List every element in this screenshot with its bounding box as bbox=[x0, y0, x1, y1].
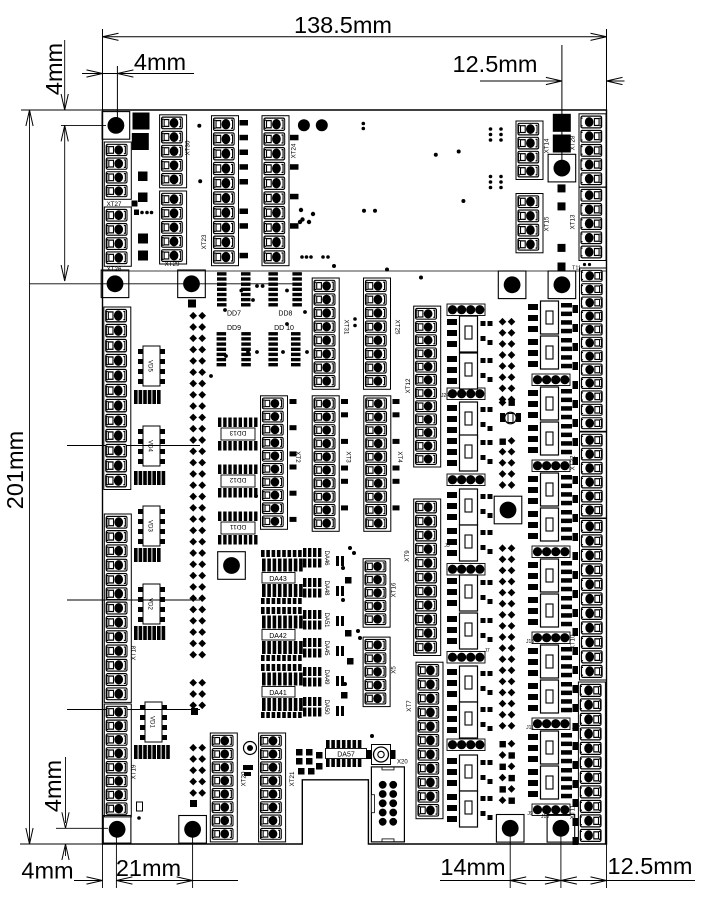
svg-text:XT14: XT14 bbox=[544, 138, 551, 153]
svg-text:DA48: DA48 bbox=[323, 580, 329, 596]
svg-text:XT12: XT12 bbox=[405, 378, 412, 393]
svg-text:VD5: VD5 bbox=[147, 360, 153, 372]
svg-text:J24: J24 bbox=[441, 393, 449, 399]
svg-text:4mm: 4mm bbox=[40, 760, 66, 812]
svg-text:DA45: DA45 bbox=[323, 640, 329, 656]
svg-text:VD1: VD1 bbox=[149, 716, 155, 728]
svg-text:DA50: DA50 bbox=[323, 699, 329, 715]
svg-text:12.5mm: 12.5mm bbox=[608, 853, 693, 879]
svg-text:XT21: XT21 bbox=[289, 771, 296, 786]
svg-text:XT15: XT15 bbox=[544, 216, 551, 231]
svg-text:XT19: XT19 bbox=[131, 764, 138, 779]
svg-text:DD8: DD8 bbox=[278, 311, 292, 318]
svg-text:XT13: XT13 bbox=[570, 214, 577, 229]
svg-text:DA51: DA51 bbox=[323, 612, 329, 628]
svg-text:201mm: 201mm bbox=[2, 431, 28, 509]
svg-text:J9: J9 bbox=[527, 811, 533, 817]
svg-text:J7: J7 bbox=[484, 648, 490, 654]
svg-text:XT3: XT3 bbox=[345, 451, 352, 463]
svg-text:DA43: DA43 bbox=[269, 576, 287, 583]
svg-text:XT29: XT29 bbox=[165, 261, 180, 268]
svg-text:DD9: DD9 bbox=[227, 325, 241, 332]
svg-text:DD12: DD12 bbox=[229, 476, 246, 483]
svg-text:DD7: DD7 bbox=[227, 311, 241, 318]
svg-text:XT23: XT23 bbox=[201, 234, 208, 249]
svg-text:XT25: XT25 bbox=[394, 320, 401, 335]
svg-text:21mm: 21mm bbox=[116, 855, 181, 881]
svg-text:XT18: XT18 bbox=[131, 645, 138, 660]
svg-text:138.5mm: 138.5mm bbox=[294, 12, 392, 38]
svg-text:VD2: VD2 bbox=[147, 598, 153, 610]
svg-text:X20: X20 bbox=[397, 760, 408, 766]
svg-text:DD13: DD13 bbox=[229, 429, 246, 436]
svg-text:4mm: 4mm bbox=[21, 858, 73, 884]
svg-text:XT26: XT26 bbox=[107, 266, 122, 273]
svg-text:DD 10: DD 10 bbox=[274, 325, 294, 332]
svg-text:XT28: XT28 bbox=[570, 135, 577, 150]
svg-text:J5: J5 bbox=[444, 543, 450, 549]
svg-text:DA41: DA41 bbox=[269, 690, 287, 697]
svg-text:J13: J13 bbox=[526, 639, 534, 645]
svg-text:J10: J10 bbox=[541, 814, 549, 820]
svg-text:DA46: DA46 bbox=[323, 550, 329, 566]
svg-text:DA57: DA57 bbox=[337, 752, 355, 759]
svg-text:DA49: DA49 bbox=[323, 669, 329, 685]
svg-text:XT7: XT7 bbox=[406, 700, 413, 712]
svg-text:XT24: XT24 bbox=[291, 143, 298, 158]
svg-text:VD3: VD3 bbox=[147, 520, 153, 532]
svg-text:XT22: XT22 bbox=[570, 455, 577, 470]
svg-text:4mm: 4mm bbox=[134, 49, 186, 75]
svg-text:XT9: XT9 bbox=[404, 550, 411, 562]
svg-text:4mm: 4mm bbox=[41, 43, 67, 95]
svg-text:XT4: XT4 bbox=[396, 451, 403, 463]
svg-text:XT31: XT31 bbox=[343, 320, 350, 335]
svg-text:12.5mm: 12.5mm bbox=[453, 51, 538, 77]
svg-text:XT30: XT30 bbox=[185, 140, 192, 155]
svg-text:DD11: DD11 bbox=[230, 523, 247, 530]
svg-text:VD4: VD4 bbox=[147, 440, 153, 452]
svg-text:XT16: XT16 bbox=[391, 582, 398, 597]
svg-text:DA42: DA42 bbox=[269, 633, 287, 640]
svg-text:X5: X5 bbox=[391, 666, 398, 674]
svg-text:J11: J11 bbox=[526, 725, 534, 731]
svg-text:XT11: XT11 bbox=[570, 804, 577, 819]
svg-text:14mm: 14mm bbox=[440, 854, 505, 880]
svg-text:XT10: XT10 bbox=[570, 634, 577, 649]
